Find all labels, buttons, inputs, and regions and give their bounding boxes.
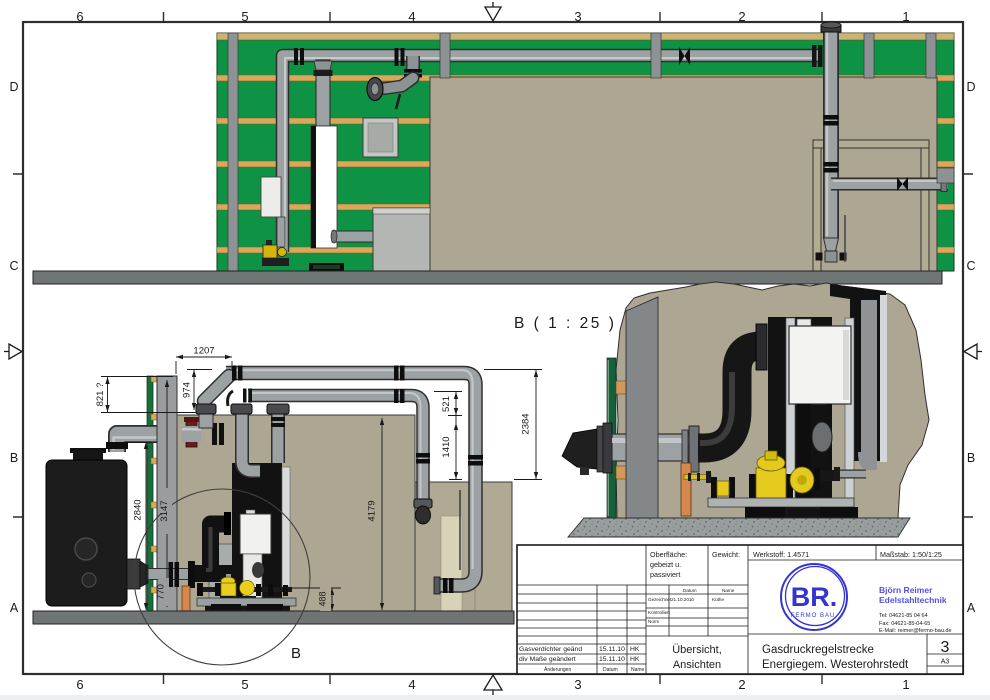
svg-text:1207: 1207 bbox=[193, 346, 214, 357]
svg-text:Norm: Norm bbox=[648, 619, 659, 624]
svg-text:521: 521 bbox=[441, 396, 452, 412]
svg-text:FERMO BAU: FERMO BAU bbox=[791, 613, 836, 619]
svg-text:B: B bbox=[967, 451, 975, 465]
svg-text:770: 770 bbox=[156, 584, 167, 600]
svg-text:Fax: 04621-85-04-65: Fax: 04621-85-04-65 bbox=[879, 621, 930, 627]
svg-text:4: 4 bbox=[408, 9, 415, 24]
svg-text:Gewicht:: Gewicht: bbox=[712, 550, 740, 559]
svg-text:Björn Reimer: Björn Reimer bbox=[879, 585, 933, 595]
svg-text:4: 4 bbox=[408, 677, 415, 692]
svg-text:2384: 2384 bbox=[521, 413, 532, 434]
svg-text:Name: Name bbox=[631, 667, 645, 673]
svg-text:5: 5 bbox=[241, 677, 248, 692]
svg-text:2: 2 bbox=[738, 9, 745, 24]
svg-text:3: 3 bbox=[941, 639, 950, 656]
svg-text:A: A bbox=[10, 601, 19, 615]
svg-text:A: A bbox=[967, 601, 976, 615]
svg-text:D: D bbox=[9, 80, 18, 94]
svg-text:BR.: BR. bbox=[791, 582, 838, 612]
svg-text:B: B bbox=[10, 451, 18, 465]
svg-text:Ansichten: Ansichten bbox=[673, 659, 721, 671]
svg-text:A3: A3 bbox=[941, 659, 950, 666]
svg-text:Übersicht,: Übersicht, bbox=[672, 644, 722, 656]
svg-text:15.11.10: 15.11.10 bbox=[599, 656, 625, 663]
svg-text:div Maße geändert: div Maße geändert bbox=[519, 656, 576, 663]
svg-text:821 ?: 821 ? bbox=[95, 383, 106, 407]
svg-text:488: 488 bbox=[318, 591, 328, 606]
svg-text:Gasdruckregelstrecke: Gasdruckregelstrecke bbox=[762, 644, 874, 656]
svg-text:6: 6 bbox=[76, 9, 83, 24]
svg-text:5: 5 bbox=[241, 9, 248, 24]
svg-text:21.10.2010: 21.10.2010 bbox=[671, 597, 694, 602]
svg-text:Tel: 04621-85 04 64: Tel: 04621-85 04 64 bbox=[879, 613, 928, 619]
svg-text:4179: 4179 bbox=[367, 500, 378, 521]
svg-text:3147: 3147 bbox=[159, 500, 170, 521]
svg-text:B ( 1 : 25 ): B ( 1 : 25 ) bbox=[514, 315, 616, 332]
svg-text:C: C bbox=[9, 259, 18, 273]
svg-text:D: D bbox=[966, 80, 975, 94]
svg-text:3: 3 bbox=[574, 677, 581, 692]
svg-text:B: B bbox=[291, 645, 301, 662]
svg-text:6: 6 bbox=[76, 677, 83, 692]
svg-text:Name: Name bbox=[722, 588, 735, 593]
svg-text:Datum: Datum bbox=[603, 667, 618, 673]
svg-text:Gasverdichter geänd: Gasverdichter geänd bbox=[519, 646, 582, 653]
svg-text:passiviert: passiviert bbox=[650, 570, 680, 579]
svg-text:2840: 2840 bbox=[133, 499, 144, 520]
svg-text:15.11.10: 15.11.10 bbox=[599, 646, 625, 653]
svg-text:1410: 1410 bbox=[441, 436, 452, 457]
svg-text:Küthe: Küthe bbox=[712, 597, 724, 602]
svg-text:Edelstahltechnik: Edelstahltechnik bbox=[879, 595, 947, 605]
svg-text:C: C bbox=[966, 259, 975, 273]
svg-text:Datum: Datum bbox=[683, 588, 697, 593]
svg-text:1: 1 bbox=[902, 9, 909, 24]
svg-text:E-Mail: reimer@fermo-bau.de: E-Mail: reimer@fermo-bau.de bbox=[879, 628, 952, 634]
svg-text:Gezeichnet: Gezeichnet bbox=[648, 597, 672, 602]
svg-text:Werkstoff: 1.4571: Werkstoff: 1.4571 bbox=[753, 550, 809, 559]
svg-text:HK: HK bbox=[630, 656, 640, 663]
svg-text:2: 2 bbox=[738, 677, 745, 692]
svg-text:Maßstab: 1:50/1:25: Maßstab: 1:50/1:25 bbox=[880, 550, 942, 559]
svg-text:3: 3 bbox=[574, 9, 581, 24]
svg-text:gebeizt u.: gebeizt u. bbox=[650, 560, 681, 569]
svg-text:HK: HK bbox=[630, 646, 640, 653]
svg-text:Energiegem. Westerohrstedt: Energiegem. Westerohrstedt bbox=[762, 659, 909, 671]
svg-text:974: 974 bbox=[182, 382, 193, 398]
svg-text:1: 1 bbox=[902, 677, 909, 692]
svg-text:Oberfläche:: Oberfläche: bbox=[650, 550, 687, 559]
svg-text:Kontrolliert: Kontrolliert bbox=[648, 610, 671, 615]
svg-text:Änderungen: Änderungen bbox=[544, 666, 571, 673]
